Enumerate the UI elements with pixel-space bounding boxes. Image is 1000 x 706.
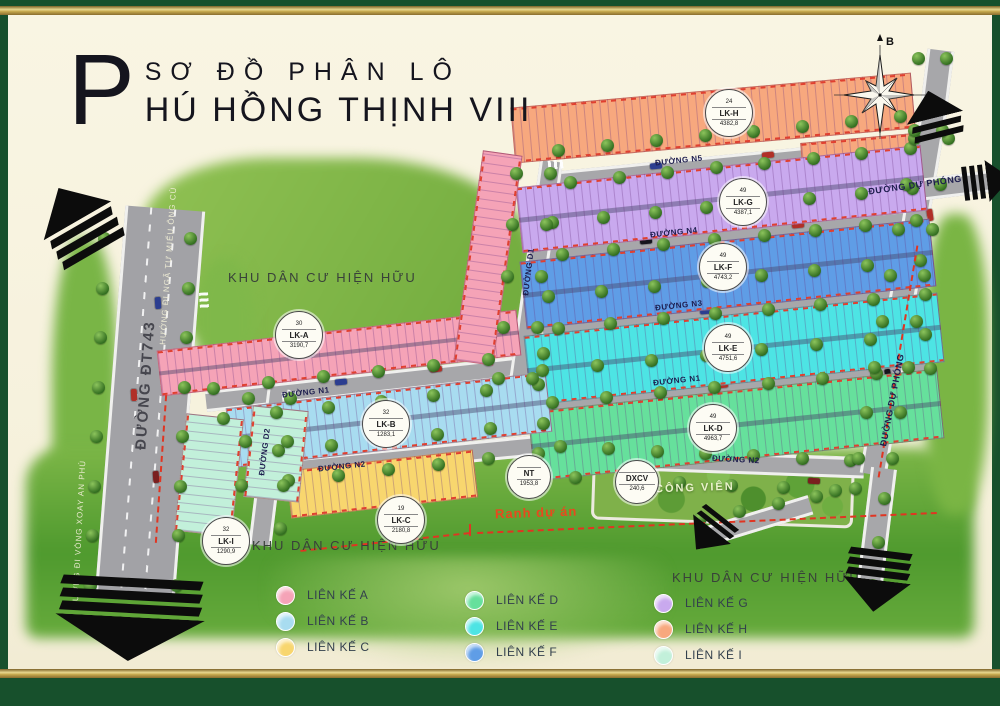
tree-icon [808, 264, 821, 277]
title-line2: HÚ HỒNG THỊNH VIII [145, 91, 533, 130]
legend-item: LIÊN KẾ E [465, 613, 620, 639]
tree-icon [814, 298, 827, 311]
tree-icon [427, 359, 440, 372]
tree-icon [322, 401, 335, 414]
legend-color-swatch-d [465, 591, 484, 610]
legend-label: LIÊN KẾ E [496, 619, 558, 633]
badge-block-area: 4963,7 [704, 436, 722, 443]
legend-column: LIÊN KẾ D LIÊN KẾ E LIÊN KẾ F [465, 582, 620, 668]
block-badge-lk-f: 49 LK-F 4743,2 [699, 243, 747, 291]
tree-icon [544, 167, 557, 180]
tree-icon [868, 361, 881, 374]
tree-icon [497, 321, 510, 334]
badge-block-area: 2180,8 [392, 528, 410, 535]
tree-icon [755, 269, 768, 282]
tree-icon [239, 435, 252, 448]
gold-border-top [0, 6, 1000, 15]
boundary-segment [469, 524, 471, 536]
tree-icon [650, 134, 663, 147]
badge-block-name: LK-H [712, 107, 745, 120]
block-badge-lk-b: 32 LK-B 1283,1 [362, 400, 410, 448]
legend-column: LIÊN KẾ G LIÊN KẾ H LIÊN KẾ I [654, 582, 809, 668]
tree-icon [556, 248, 569, 261]
tree-icon [542, 290, 555, 303]
badge-lot-count: 32 [383, 410, 390, 417]
tree-icon [872, 536, 885, 549]
car-icon [335, 378, 348, 385]
legend-color-swatch-b [276, 612, 295, 631]
tree-icon [537, 347, 550, 360]
tree-icon [372, 365, 385, 378]
tree-icon [96, 282, 109, 295]
tree-icon [886, 452, 899, 465]
tree-icon [607, 243, 620, 256]
gold-border-bottom [0, 669, 1000, 678]
tree-icon [184, 232, 197, 245]
tree-icon [699, 129, 712, 142]
badge-lot-count: 19 [398, 506, 405, 513]
tree-icon [910, 214, 923, 227]
badge-block-area: 4751,6 [719, 356, 737, 363]
legend-color-swatch-i [654, 646, 673, 665]
badge-block-name: LK-B [369, 418, 402, 431]
legend-label: LIÊN KẾ H [685, 622, 748, 636]
tree-icon [270, 406, 283, 419]
badge-block-area: 4743,2 [714, 275, 732, 282]
tree-icon [758, 229, 771, 242]
tree-icon [940, 52, 953, 65]
tree-icon [816, 372, 829, 385]
car-icon [808, 478, 820, 485]
badge-block-area: 1283,1 [377, 432, 395, 439]
legend-color-swatch-f [465, 643, 484, 662]
tree-icon [178, 381, 191, 394]
block-badge-lk-h: 24 LK-H 4382,8 [705, 89, 753, 137]
road-arrow-south-left-icon [53, 574, 207, 665]
road-arrow-south-right-icon [839, 546, 914, 616]
legend-color-swatch-c [276, 638, 295, 657]
legend-item: LIÊN KẾ F [465, 639, 620, 665]
legend-label: LIÊN KẾ D [496, 593, 559, 607]
badge-lot-count: 32 [223, 527, 230, 534]
tree-icon [277, 479, 290, 492]
legend-item: LIÊN KẾ I [654, 642, 809, 668]
badge-block-area: 1290,9 [217, 549, 235, 556]
block-badge-lk-d: 49 LK-D 4963,7 [689, 404, 737, 452]
tree-icon [595, 285, 608, 298]
badge-nt: NT 1953,8 [507, 455, 551, 499]
tree-icon [772, 497, 785, 510]
crosswalk [199, 292, 209, 309]
tree-icon [510, 167, 523, 180]
tree-icon [92, 381, 105, 394]
project-boundary-label: Ranh dự án [495, 504, 578, 522]
tree-icon [803, 192, 816, 205]
compass-rose-graphic: B [832, 32, 928, 142]
tree-icon [651, 445, 664, 458]
legend-item: LIÊN KẾ D [465, 587, 620, 613]
tree-icon [217, 412, 230, 425]
legend-item: LIÊN KẾ A [276, 582, 431, 608]
tree-icon [807, 152, 820, 165]
tree-icon [733, 505, 746, 518]
badge-lot-count: 49 [710, 414, 717, 421]
block-badge-lk-c: 19 LK-C 2180,8 [377, 496, 425, 544]
tree-icon [506, 218, 519, 231]
badge-block-name: LK-A [282, 329, 315, 342]
tree-icon [564, 176, 577, 189]
tree-icon [537, 417, 550, 430]
badge-block-name: NT [517, 467, 542, 480]
tree-icon [758, 157, 771, 170]
block-badge-lk-a: 30 LK-A 3190,7 [275, 311, 323, 359]
tree-icon [762, 377, 775, 390]
badge-block-area: 4387,1 [734, 210, 752, 217]
tree-icon [325, 439, 338, 452]
badge-block-name: LK-F [707, 261, 739, 274]
tree-icon [431, 428, 444, 441]
tree-icon [182, 282, 195, 295]
plan-title: P SƠ ĐỒ PHÂN LÔ HÚ HỒNG THỊNH VIII [68, 48, 532, 133]
tree-icon [861, 259, 874, 272]
badge-block-name: LK-I [211, 535, 241, 548]
badge-block-name: LK-G [726, 196, 760, 209]
tree-icon [910, 315, 923, 328]
badge-block-area: 4382,8 [720, 121, 738, 128]
badge-block-name: LK-C [384, 514, 417, 527]
tree-icon [569, 471, 582, 484]
tree-icon [829, 484, 842, 497]
block-badge-lk-e: 49 LK-E 4751,6 [704, 324, 752, 372]
tree-icon [849, 482, 862, 495]
legend-color-swatch-g [654, 594, 673, 613]
legend: LIÊN KẾ A LIÊN KẾ B LIÊN KẾ C LIÊN KẾ D … [276, 582, 843, 668]
legend-color-swatch-h [654, 620, 673, 639]
compass-rose: B [832, 32, 928, 142]
tree-icon [796, 452, 809, 465]
legend-color-swatch-e [465, 617, 484, 636]
tree-icon [591, 359, 604, 372]
legend-color-swatch-a [276, 586, 295, 605]
tree-icon [281, 435, 294, 448]
tree-icon [809, 224, 822, 237]
badge-lot-count: 49 [720, 253, 727, 260]
tree-icon [482, 353, 495, 366]
badge-lot-count: 24 [726, 99, 733, 106]
tree-icon [531, 321, 544, 334]
title-line1: SƠ ĐỒ PHÂN LÔ [145, 58, 533, 87]
badge-block-area: 1953,8 [520, 481, 538, 488]
badge-dxcv: DXCV 240,6 [615, 460, 659, 504]
badge-block-area: 3190,7 [290, 343, 308, 350]
tree-icon [546, 396, 559, 409]
tree-icon [810, 338, 823, 351]
tree-icon [762, 303, 775, 316]
tree-icon [540, 218, 553, 231]
title-initial: P [68, 48, 135, 133]
legend-label: LIÊN KẾ A [307, 588, 368, 602]
badge-lot-count: 49 [740, 188, 747, 195]
tree-icon [526, 372, 539, 385]
tree-icon [242, 392, 255, 405]
road-arrow-east-icon [961, 157, 1000, 205]
tree-icon [88, 480, 101, 493]
legend-label: LIÊN KẾ G [685, 596, 748, 610]
tree-icon [876, 315, 889, 328]
tree-icon [924, 362, 937, 375]
north-arrow-icon [877, 34, 883, 41]
badge-block-name: LK-D [696, 422, 729, 435]
tree-icon [235, 479, 248, 492]
tree-icon [796, 120, 809, 133]
tree-icon [919, 288, 932, 301]
tree-icon [174, 480, 187, 493]
tree-icon [535, 270, 548, 283]
legend-item: LIÊN KẾ C [276, 634, 431, 660]
tree-icon [601, 139, 614, 152]
tree-icon [274, 522, 287, 535]
tree-icon [878, 492, 891, 505]
badge-block-name: LK-E [712, 342, 745, 355]
tree-icon [552, 322, 565, 335]
tree-icon [207, 382, 220, 395]
legend-label: LIÊN KẾ B [307, 614, 369, 628]
existing-area-label-top-left: KHU DÂN CƯ HIỆN HỮU [228, 270, 417, 285]
legend-item: LIÊN KẾ G [654, 590, 809, 616]
legend-label: LIÊN KẾ C [307, 640, 370, 654]
tree-icon [552, 144, 565, 157]
badge-lot-count: 49 [725, 334, 732, 341]
tree-icon [855, 187, 868, 200]
tree-icon [492, 372, 505, 385]
tree-icon [919, 328, 932, 341]
tree-icon [867, 293, 880, 306]
legend-label: LIÊN KẾ F [496, 645, 557, 659]
north-label: B [886, 36, 894, 48]
tree-icon [747, 125, 760, 138]
badge-lot-count: 30 [296, 321, 303, 328]
legend-item: LIÊN KẾ B [276, 608, 431, 634]
legend-item: LIÊN KẾ H [654, 616, 809, 642]
tree-icon [648, 280, 661, 293]
block-badge-lk-i: 32 LK-I 1290,9 [202, 517, 250, 565]
tree-icon [501, 270, 514, 283]
block-badge-lk-g: 49 LK-G 4387,1 [719, 178, 767, 226]
badge-block-name: DXCV [619, 472, 655, 485]
legend-column: LIÊN KẾ A LIÊN KẾ B LIÊN KẾ C [276, 582, 431, 668]
tree-icon [554, 440, 567, 453]
tree-icon [852, 452, 865, 465]
legend-label: LIÊN KẾ I [685, 648, 742, 662]
badge-block-area: 240,6 [629, 486, 644, 493]
tree-icon [613, 171, 626, 184]
tree-icon [432, 458, 445, 471]
tree-icon [480, 384, 493, 397]
tree-icon [810, 490, 823, 503]
